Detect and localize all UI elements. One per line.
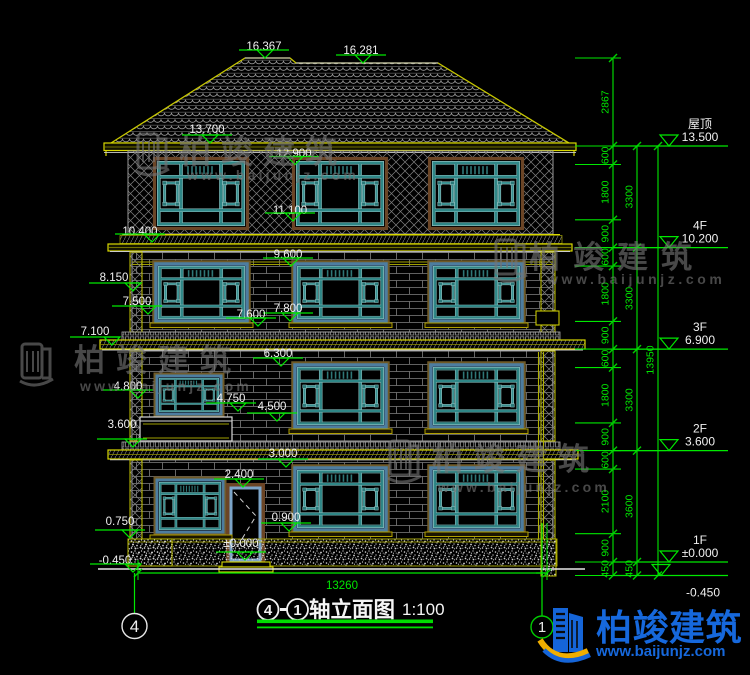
svg-text:屋顶: 屋顶 bbox=[688, 117, 712, 131]
svg-text:600: 600 bbox=[600, 451, 612, 469]
svg-text:900: 900 bbox=[600, 428, 612, 446]
svg-text:www.baijunjz.com: www.baijunjz.com bbox=[437, 479, 610, 495]
svg-text:3.600: 3.600 bbox=[685, 435, 715, 449]
svg-text:1:100: 1:100 bbox=[402, 600, 445, 619]
svg-text:柏竣建筑: 柏竣建筑 bbox=[74, 343, 242, 378]
svg-text:900: 900 bbox=[600, 539, 612, 557]
svg-text:450: 450 bbox=[600, 560, 612, 578]
svg-text:4: 4 bbox=[130, 617, 139, 636]
svg-text:2F: 2F bbox=[693, 422, 707, 436]
svg-text:-0.450: -0.450 bbox=[686, 586, 720, 600]
svg-text:3300: 3300 bbox=[624, 185, 636, 209]
svg-text:2867: 2867 bbox=[600, 90, 612, 114]
svg-text:轴立面图: 轴立面图 bbox=[309, 597, 395, 622]
svg-text:±0.000: ±0.000 bbox=[223, 538, 258, 550]
svg-text:1800: 1800 bbox=[600, 180, 612, 204]
svg-text:13260: 13260 bbox=[326, 580, 358, 592]
svg-text:4F: 4F bbox=[693, 219, 707, 233]
svg-text:6.900: 6.900 bbox=[685, 333, 715, 347]
svg-text:16.367: 16.367 bbox=[246, 41, 281, 53]
svg-text:1800: 1800 bbox=[600, 383, 612, 407]
svg-text:10.400: 10.400 bbox=[122, 226, 157, 238]
svg-text:7.100: 7.100 bbox=[81, 326, 110, 338]
svg-text:3F: 3F bbox=[693, 320, 707, 334]
svg-text:柏竣建筑: 柏竣建筑 bbox=[529, 240, 705, 275]
svg-text:±0.000: ±0.000 bbox=[682, 546, 719, 560]
svg-text:3.000: 3.000 bbox=[269, 448, 298, 460]
svg-text:4.500: 4.500 bbox=[258, 401, 287, 413]
svg-text:1: 1 bbox=[538, 619, 546, 636]
svg-text:3.600: 3.600 bbox=[108, 419, 137, 431]
svg-text:600: 600 bbox=[600, 146, 612, 164]
svg-text:0.900: 0.900 bbox=[272, 512, 301, 524]
svg-text:www.baijunjz.com: www.baijunjz.com bbox=[546, 271, 725, 287]
svg-text:柏竣建筑: 柏竣建筑 bbox=[179, 134, 347, 170]
svg-text:www.baijunjz.com: www.baijunjz.com bbox=[79, 378, 252, 394]
svg-text:11.100: 11.100 bbox=[273, 205, 307, 217]
svg-text:900: 900 bbox=[600, 326, 612, 344]
svg-text:1: 1 bbox=[293, 602, 301, 619]
svg-text:1F: 1F bbox=[693, 533, 707, 547]
svg-text:3600: 3600 bbox=[624, 494, 636, 518]
svg-text:3300: 3300 bbox=[624, 287, 636, 311]
svg-text:8.150: 8.150 bbox=[100, 272, 129, 284]
svg-text:www.baijunjz.com: www.baijunjz.com bbox=[595, 643, 725, 660]
svg-text:柏竣建筑: 柏竣建筑 bbox=[432, 442, 600, 477]
svg-text:4: 4 bbox=[264, 602, 273, 619]
svg-text:3300: 3300 bbox=[624, 388, 636, 412]
svg-text:13.500: 13.500 bbox=[682, 130, 719, 144]
svg-text:www.baijunjz.com: www.baijunjz.com bbox=[186, 167, 359, 183]
svg-text:柏竣建筑: 柏竣建筑 bbox=[596, 607, 742, 648]
svg-text:600: 600 bbox=[600, 349, 612, 367]
svg-text:0.750: 0.750 bbox=[106, 516, 135, 528]
